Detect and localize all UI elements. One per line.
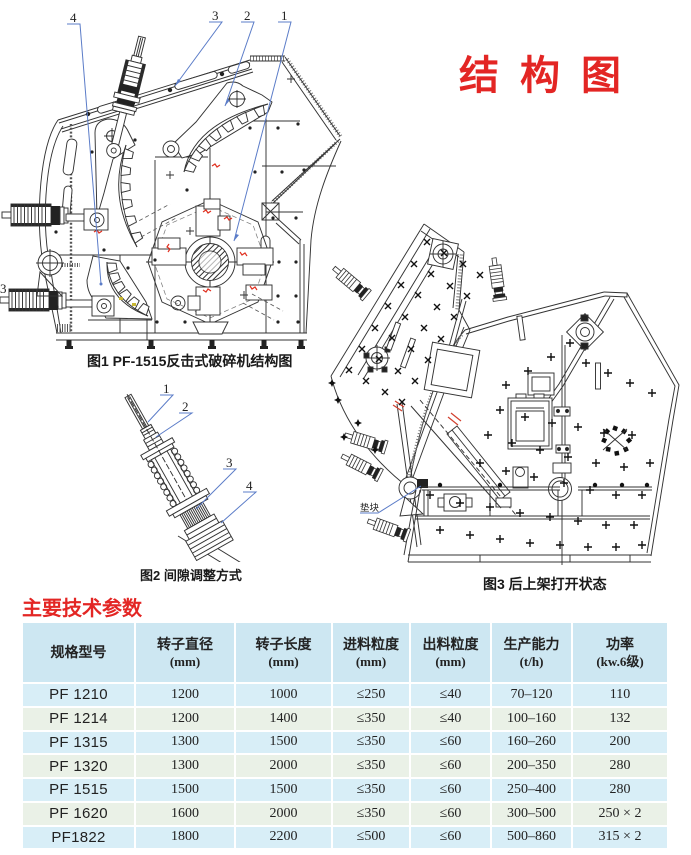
svg-text:1: 1 bbox=[163, 381, 170, 396]
svg-text:2: 2 bbox=[182, 399, 189, 414]
svg-text:4: 4 bbox=[70, 10, 77, 25]
svg-text:垫块: 垫块 bbox=[360, 502, 380, 514]
svg-text:3: 3 bbox=[0, 281, 7, 296]
svg-text:4: 4 bbox=[246, 478, 253, 493]
svg-text:1: 1 bbox=[281, 8, 288, 23]
svg-text:2: 2 bbox=[244, 8, 251, 23]
svg-text:3: 3 bbox=[212, 8, 219, 23]
svg-text:3: 3 bbox=[226, 455, 233, 470]
